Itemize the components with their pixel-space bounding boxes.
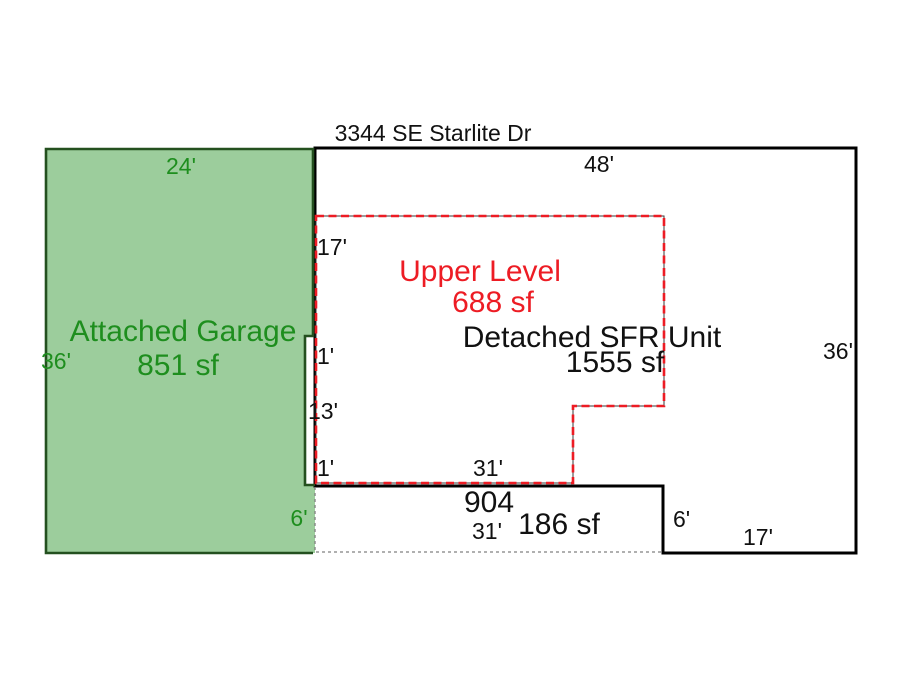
porch-width-31ft-label: 31' (472, 518, 502, 544)
jog-1ft-top-label: 1' (317, 343, 334, 369)
garage-height-36ft-label: 36' (41, 348, 71, 374)
sfr-bottom-17ft-label: 17' (743, 524, 773, 550)
porch-area-label: 186 sf (518, 508, 600, 541)
garage-title: Attached Garage (70, 315, 297, 348)
garage-width-top-label: 24' (166, 153, 196, 179)
garage-area: 851 sf (137, 349, 219, 382)
street-address-label: 3344 SE Starlite Dr (335, 120, 532, 146)
jog-1ft-bottom-label: 1' (317, 455, 334, 481)
upper-level-area: 688 sf (452, 286, 534, 319)
upper-width-31ft-label: 31' (473, 455, 503, 481)
upper-level-title: Upper Level (399, 255, 561, 288)
sfr-unit-area: 1555 sf (566, 346, 665, 379)
sfr-height-36ft-label: 36' (823, 338, 853, 364)
sfr-width-48ft-label: 48' (584, 151, 614, 177)
floor-plan-canvas: 3344 SE Starlite Dr 48' 24' 17' Upper Le… (0, 0, 900, 675)
garage-step-6ft-label: 6' (290, 505, 307, 531)
floor-plan-diagram: 3344 SE Starlite Dr 48' 24' 17' Upper Le… (0, 0, 900, 675)
wall-13ft-label: 13' (308, 398, 338, 424)
upper-height-17ft-label: 17' (317, 234, 347, 260)
porch-904-label: 904 (464, 486, 514, 519)
sfr-step-6ft-label: 6' (673, 506, 690, 532)
